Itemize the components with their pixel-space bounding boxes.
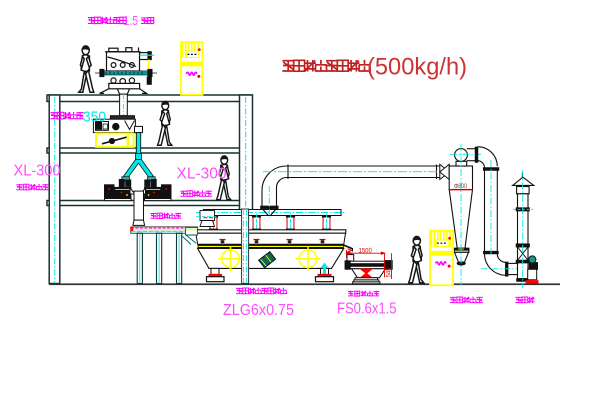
svg-text:1500: 1500: [359, 249, 373, 255]
svg-text:350: 350: [83, 109, 106, 126]
svg-text:545: 545: [387, 267, 393, 278]
svg-text:ZLG6x0.75: ZLG6x0.75: [223, 302, 294, 319]
svg-text:(500kg/h): (500kg/h): [367, 54, 467, 81]
svg-text:XL-300: XL-300: [14, 163, 61, 180]
svg-text:1.5: 1.5: [124, 13, 139, 28]
svg-text:XL-300: XL-300: [177, 166, 227, 183]
svg-text:FS0.6x1.5: FS0.6x1.5: [337, 301, 397, 318]
